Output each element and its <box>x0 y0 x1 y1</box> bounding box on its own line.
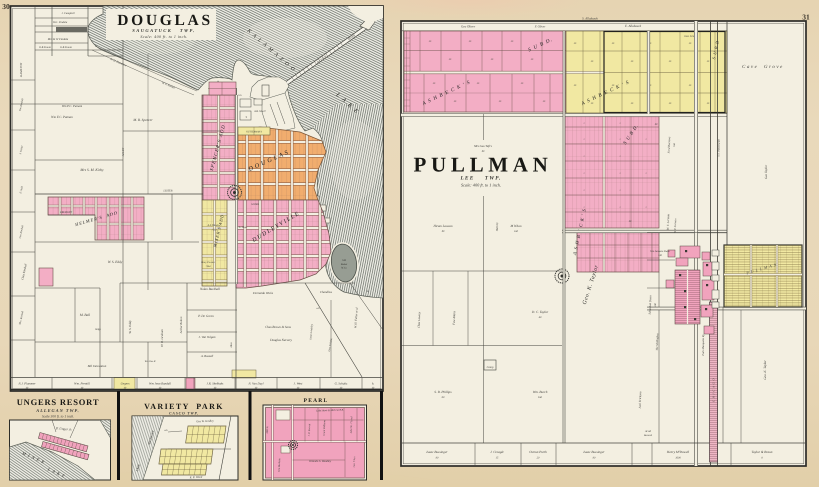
svg-text:Nolan Buckhall: Nolan Buckhall <box>199 287 220 291</box>
svg-text:Ungers: Ungers <box>120 382 130 386</box>
svg-text:Chandliss: Chandliss <box>320 290 333 294</box>
svg-text:Chas Brown & Sons: Chas Brown & Sons <box>265 325 292 329</box>
svg-text:Geo ? Son: Geo ? Son <box>353 456 356 468</box>
svg-text:FREMONT: FREMONT <box>59 211 73 214</box>
svg-text:Chas Lowrey: Chas Lowrey <box>417 311 422 328</box>
svg-text:CASCO TWP.: CASCO TWP. <box>169 412 199 416</box>
svg-text:Geo Grim: Geo Grim <box>684 35 695 38</box>
svg-text:S. R. Phillips: S. R. Phillips <box>434 390 452 394</box>
svg-text:UNGERS RESORT: UNGERS RESORT <box>17 397 100 407</box>
svg-text:Scale: 400 ft. to 1 inch.: Scale: 400 ft. to 1 inch. <box>461 183 501 188</box>
svg-text:m: m <box>217 80 219 83</box>
svg-text:Mary Proctor: Mary Proctor <box>200 261 215 264</box>
svg-text:Geo. K. Taylor: Geo. K. Taylor <box>763 360 767 380</box>
svg-text:? Bol: ? Bol <box>205 265 210 268</box>
svg-text:W. S. Eddy: W. S. Eddy <box>128 320 132 334</box>
svg-text:bldgs: bldgs <box>95 328 101 331</box>
svg-text:J.R. Shelbabs: J.R. Shelbabs <box>207 382 225 386</box>
svg-text:F. Oliver: F. Oliver <box>534 25 546 29</box>
svg-text:Arthur Bolton: Arthur Bolton <box>179 316 183 334</box>
svg-text:O.B.Fintila: O.B.Fintila <box>39 46 52 49</box>
svg-text:Geo W. Gridley: Geo W. Gridley <box>196 420 214 424</box>
svg-text:Camp: Camp <box>487 366 494 369</box>
svg-text:NUTTERMAN'S: NUTTERMAN'S <box>245 131 262 134</box>
svg-text:Henry MºDowell: Henry MºDowell <box>666 450 689 454</box>
svg-text:W. P. Forman: W. P. Forman <box>674 218 678 233</box>
svg-text:N.J. Plummer: N.J. Plummer <box>17 382 36 386</box>
svg-text:S.B: S.B <box>342 259 346 262</box>
svg-text:J. Campbell: J. Campbell <box>62 12 75 15</box>
svg-text:Sebastian Dunn: Sebastian Dunn <box>648 295 653 315</box>
svg-text:160: 160 <box>538 396 543 399</box>
svg-text:? Bol: ? Bol <box>211 229 216 232</box>
svg-text:Douglas Nursery: Douglas Nursery <box>269 338 292 342</box>
svg-text:Isaac Bussinger: Isaac Bussinger <box>582 450 605 454</box>
svg-text:C H I C A G O: C H I C A G O <box>712 378 715 402</box>
svg-text:S. Allabasck: S. Allabasck <box>582 17 598 21</box>
svg-text:N. Van Duyl: N. Van Duyl <box>247 382 263 386</box>
svg-text:Fred Burrows: Fred Burrows <box>667 136 672 155</box>
svg-text:Hall 80: Hall 80 <box>496 222 499 232</box>
svg-text:LESTER: LESTER <box>163 190 173 193</box>
svg-text:Wm P.C. Putnam: Wm P.C. Putnam <box>62 104 83 108</box>
svg-text:J. P. Everett: J. P. Everett <box>308 423 311 436</box>
svg-text:Wm Burdette: Wm Burdette <box>278 457 281 471</box>
svg-text:WATER: WATER <box>251 203 259 206</box>
svg-text:Wm. Prentill: Wm. Prentill <box>74 382 90 386</box>
svg-text:Scale: 400 ft. to 1 inch.: Scale: 400 ft. to 1 inch. <box>140 34 187 39</box>
svg-text:J. West: J. West <box>294 382 303 386</box>
svg-text:Grant Williams: Grant Williams <box>323 420 327 436</box>
svg-text:PULLMAN: PULLMAN <box>413 153 552 177</box>
svg-text:A.S.Whitlow: A.S.Whitlow <box>207 224 221 227</box>
svg-text:J. Van Volgan: J. Van Volgan <box>199 335 216 339</box>
svg-text:Mrs S. M. Kirby: Mrs S. M. Kirby <box>79 168 104 172</box>
svg-text:DOUGLAS: DOUGLAS <box>117 12 213 29</box>
svg-text:A.B. Wool?: A.B. Wool? <box>253 110 266 113</box>
svg-text:Park Marquette Ry: Park Marquette Ry <box>702 334 705 357</box>
svg-text:Mrs H W Findala: Mrs H W Findala <box>47 37 69 41</box>
svg-text:M Whan: M Whan <box>510 224 522 228</box>
svg-text:hi: hi <box>367 290 369 293</box>
svg-text:G.B.Fintila: G.B.Fintila <box>60 46 73 49</box>
svg-text:The Shillinghes: The Shillinghes <box>656 333 660 350</box>
svg-text:H.AMILTON: H.AMILTON <box>20 63 23 79</box>
svg-text:H. B. Graham: H. B. Graham <box>160 328 164 347</box>
svg-text:W. T. Lerman: W. T. Lerman <box>666 213 671 230</box>
svg-text:Geo Oliver: Geo Oliver <box>461 25 476 29</box>
svg-text:Orlando S. Headley: Orlando S. Headley <box>309 460 332 463</box>
svg-text:ALLEGAN TWP.: ALLEGAN TWP. <box>35 408 79 413</box>
svg-text:M. B. Spencer: M. B. Spencer <box>132 118 153 122</box>
svg-text:PEARL: PEARL <box>304 398 329 404</box>
svg-text:Fernando Wicks: Fernando Wicks <box>252 291 274 295</box>
svg-text:Wm F.C. Putman: Wm F.C. Putman <box>51 115 73 119</box>
svg-text:h.: h. <box>372 382 375 386</box>
svg-text:1600: 1600 <box>675 457 681 460</box>
svg-text:Allen: Allen <box>230 342 233 349</box>
svg-text:Wm. Burch: Wm. Burch <box>533 390 548 394</box>
svg-text:Hiram Lawson: Hiram Lawson <box>432 224 452 228</box>
svg-text:Wm Jean Randall: Wm Jean Randall <box>149 382 171 386</box>
svg-text:Fow Atkins: Fow Atkins <box>452 310 457 326</box>
svg-text:S.S. Bazzard 40: S.S. Bazzard 40 <box>717 139 721 157</box>
svg-text:SAUGATUCK TWP.: SAUGATUCK TWP. <box>132 28 195 33</box>
svg-text:G. Schultz: G. Schultz <box>335 382 349 386</box>
svg-text:Geo Taylor: Geo Taylor <box>764 164 768 179</box>
svg-text:Mill St: Mill St <box>266 426 269 434</box>
svg-text:D. C. Taylor: D. C. Taylor <box>531 310 549 314</box>
svg-text:LEE TWP.: LEE TWP. <box>459 176 501 182</box>
svg-text:Cave Grove: Cave Grove <box>742 64 784 70</box>
svg-text:Bill Innovation: Bill Innovation <box>88 364 107 368</box>
svg-text:Arvid: Arvid <box>644 430 652 433</box>
svg-text:M.Co: M.Co <box>340 267 347 270</box>
svg-text:W.G. Findala: W.G. Findala <box>53 21 68 24</box>
svg-text:M. Ball: M. Ball <box>79 313 90 317</box>
svg-text:E. Allabasck: E. Allabasck <box>624 24 642 28</box>
svg-text:Bazzard: Bazzard <box>644 434 653 437</box>
svg-text:VARIETY PARK: VARIETY PARK <box>144 402 224 411</box>
svg-text:Axel Erickson: Axel Erickson <box>638 391 643 409</box>
svg-text:Wm Ainsetta Dunn: Wm Ainsetta Dunn <box>650 250 670 253</box>
svg-text:J. Croagle: J. Croagle <box>490 450 504 454</box>
svg-text:Wm Geo R: Wm Geo R <box>145 360 156 363</box>
svg-text:W. S. Eddy: W. S. Eddy <box>108 260 123 264</box>
svg-text:Mrs Geo Tuft's: Mrs Geo Tuft's <box>473 144 493 148</box>
svg-text:P. De Green: P. De Green <box>197 314 214 318</box>
svg-text:30: 30 <box>2 2 10 11</box>
svg-text:A. Bussell: A. Bussell <box>200 354 214 358</box>
svg-text:Scale 300 ft. to 1 inch.: Scale 300 ft. to 1 inch. <box>42 415 74 419</box>
svg-text:A. Shaw: A. Shaw <box>238 226 248 229</box>
svg-text:Taylor & Braun: Taylor & Braun <box>752 450 773 454</box>
svg-text:Ostrun Purth: Ostrun Purth <box>529 450 547 454</box>
svg-text:ALLEN: ALLEN <box>122 148 125 158</box>
svg-text:Isaac Bussinger: Isaac Bussinger <box>425 450 448 454</box>
